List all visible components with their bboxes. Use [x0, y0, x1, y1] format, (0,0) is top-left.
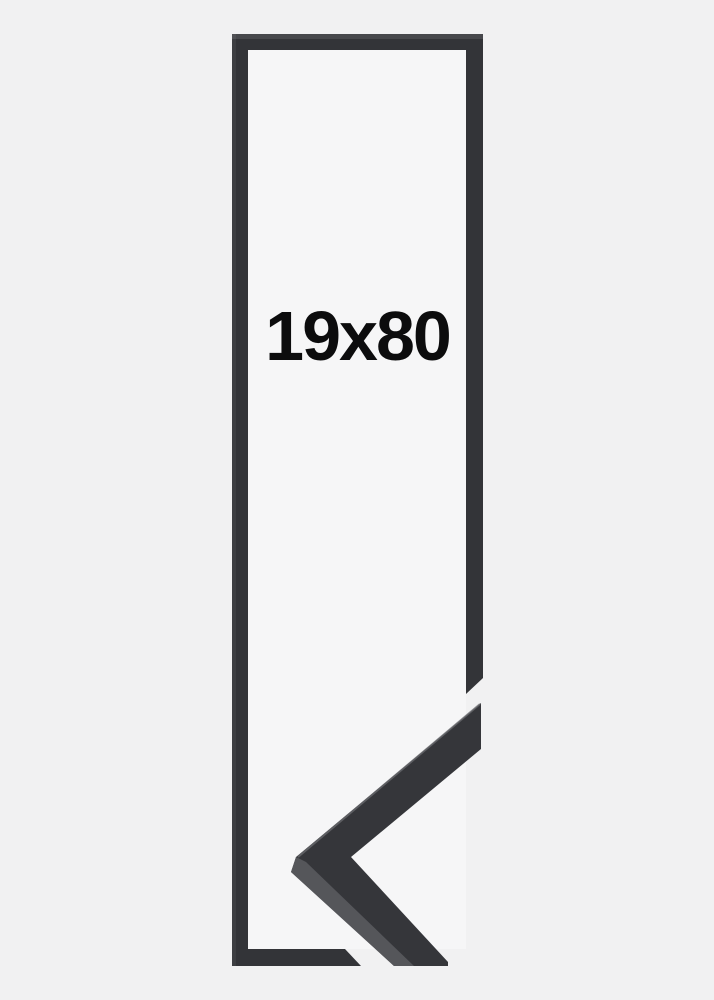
- frame-left-bevel-highlight: [232, 34, 236, 966]
- frame-top-bevel-highlight: [232, 34, 483, 39]
- frame-border-bottom: [232, 949, 361, 966]
- product-image: 19x80: [0, 0, 714, 1000]
- frame-graphic: [0, 0, 714, 1000]
- size-label: 19x80: [232, 301, 483, 371]
